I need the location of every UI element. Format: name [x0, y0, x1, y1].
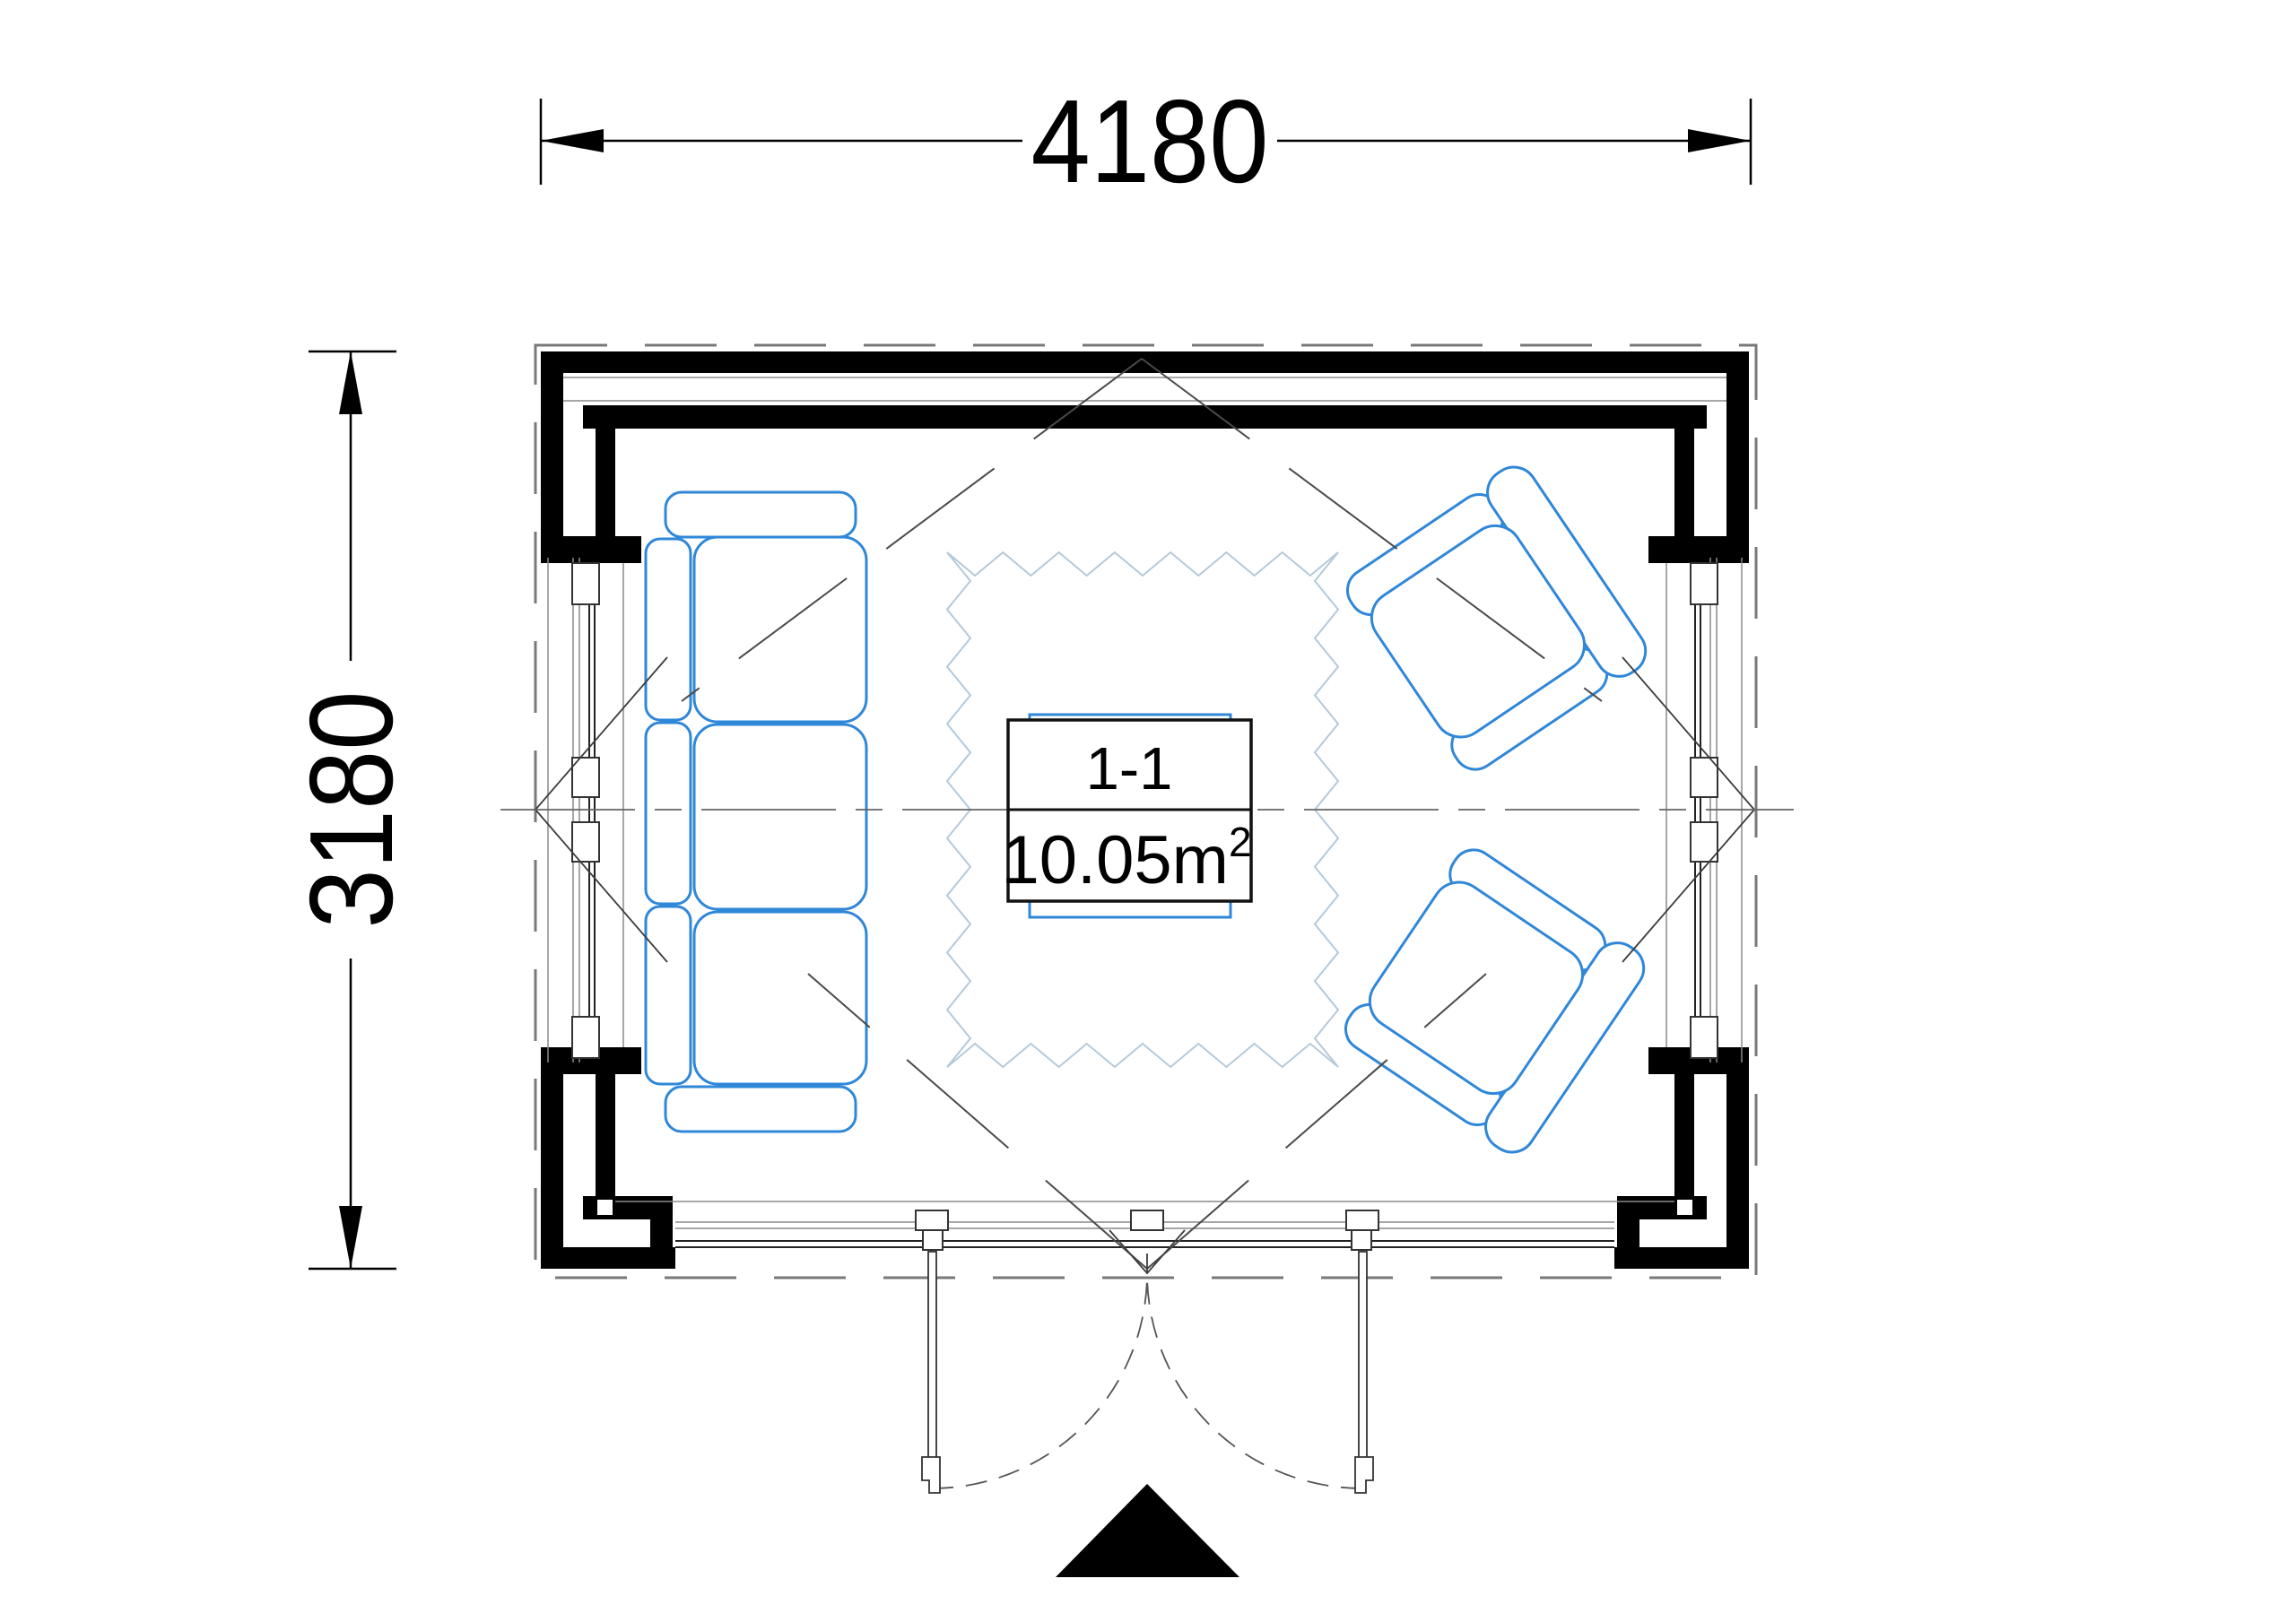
dimension-width-value: 4180: [1031, 75, 1269, 207]
door-leaf-right: [1359, 1252, 1367, 1462]
floor-plan-drawing: 1-1 10.05m2 4180 3180: [0, 0, 2296, 1622]
dimension-height: 3180: [285, 351, 417, 1269]
room-label-box: 1-1 10.05m2: [1001, 720, 1251, 901]
double-doors: [922, 1252, 1373, 1493]
dim-arrow-down-icon: [339, 1206, 362, 1269]
dimension-height-value: 3180: [285, 691, 417, 929]
dim-arrow-right-icon: [1688, 129, 1751, 152]
armchair-top: [1337, 458, 1655, 781]
floor-plan-page: 1-1 10.05m2 4180 3180: [0, 0, 2296, 1622]
dim-arrow-up-icon: [339, 351, 362, 414]
armchair-bottom: [1335, 838, 1653, 1161]
door-leaf-left: [928, 1252, 936, 1462]
entrance-triangle-icon: [1056, 1484, 1239, 1577]
dim-arrow-left-icon: [541, 129, 604, 152]
dimension-width: 4180: [541, 75, 1751, 207]
top-wall-cavity-lines: [563, 377, 1726, 401]
room-number: 1-1: [1086, 735, 1173, 802]
bottom-wall: [615, 1201, 1674, 1250]
room-area: 10.05m2: [1001, 819, 1251, 898]
